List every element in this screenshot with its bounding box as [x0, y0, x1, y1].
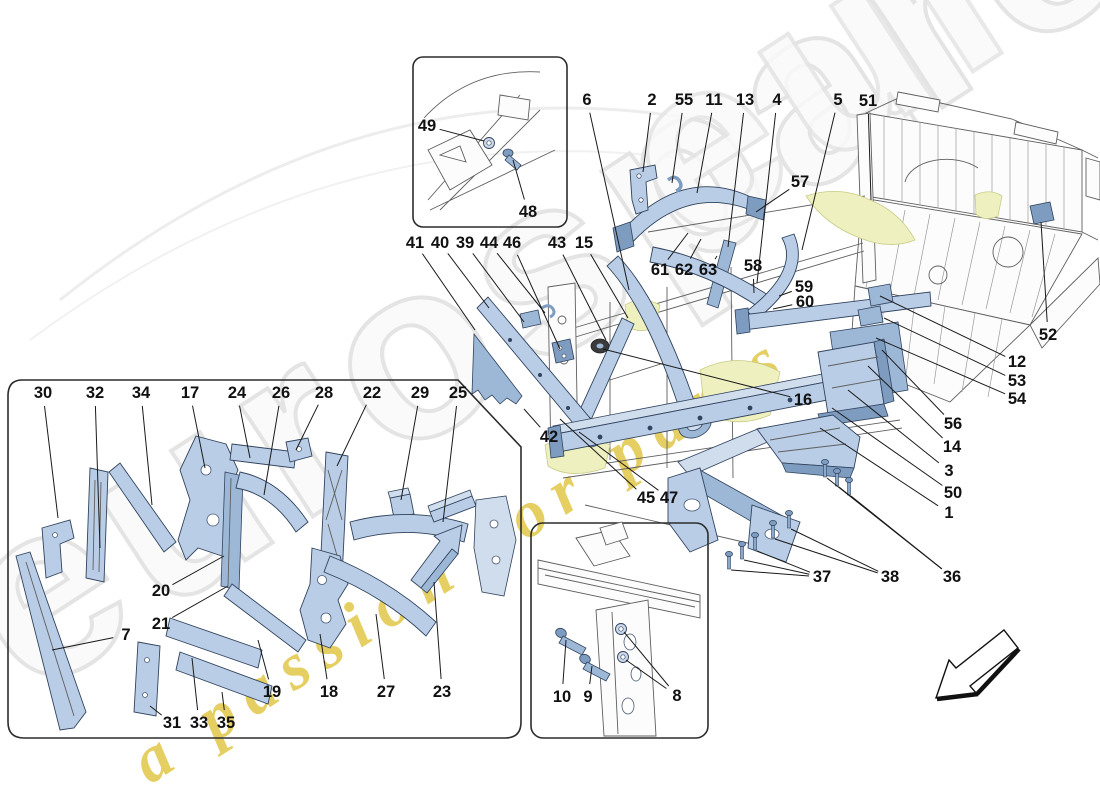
callout-49[interactable]: 49 — [418, 117, 436, 135]
callout-4[interactable]: 4 — [772, 91, 782, 109]
callout-50[interactable]: 50 — [944, 484, 962, 502]
callout-19[interactable]: 19 — [263, 683, 281, 701]
mount-box — [818, 342, 884, 414]
callout-38[interactable]: 38 — [881, 568, 899, 586]
callout-55[interactable]: 55 — [675, 91, 693, 109]
channel-20 — [221, 472, 243, 590]
callout-58[interactable]: 58 — [744, 257, 762, 275]
callout-23[interactable]: 23 — [433, 683, 451, 701]
orientation-arrow — [936, 630, 1019, 699]
callout-32[interactable]: 32 — [86, 384, 104, 402]
callout-43[interactable]: 43 — [548, 234, 566, 252]
callout-7[interactable]: 7 — [121, 626, 130, 644]
callout-24[interactable]: 24 — [228, 384, 247, 402]
callout-39[interactable]: 39 — [456, 234, 474, 252]
callout-2[interactable]: 2 — [647, 91, 656, 109]
callout-9[interactable]: 9 — [583, 688, 592, 706]
callout-47[interactable]: 47 — [660, 489, 678, 507]
leader-line-37 — [731, 570, 809, 576]
callout-56[interactable]: 56 — [944, 415, 962, 433]
callout-8[interactable]: 8 — [672, 687, 681, 705]
callout-48[interactable]: 48 — [519, 203, 537, 221]
callout-42[interactable]: 42 — [540, 428, 558, 446]
callout-34[interactable]: 34 — [132, 384, 151, 402]
bracket-part-52 — [1030, 202, 1054, 224]
callout-21[interactable]: 21 — [152, 615, 170, 633]
callout-30[interactable]: 30 — [34, 384, 52, 402]
leader-line-36 — [851, 496, 942, 569]
callout-22[interactable]: 22 — [363, 384, 381, 402]
callout-63[interactable]: 63 — [699, 261, 717, 279]
pillar-32 — [86, 468, 108, 582]
callout-26[interactable]: 26 — [272, 384, 290, 402]
callout-31[interactable]: 31 — [163, 714, 181, 732]
callout-28[interactable]: 28 — [315, 384, 333, 402]
callout-54[interactable]: 54 — [1008, 390, 1027, 408]
callout-15[interactable]: 15 — [575, 234, 593, 252]
callout-10[interactable]: 10 — [553, 688, 571, 706]
callout-53[interactable]: 53 — [1008, 372, 1026, 390]
callout-3[interactable]: 3 — [944, 462, 953, 480]
callout-61[interactable]: 61 — [651, 261, 669, 279]
callout-62[interactable]: 62 — [675, 261, 693, 279]
callout-5[interactable]: 5 — [833, 91, 842, 109]
callout-44[interactable]: 44 — [480, 234, 499, 252]
callout-27[interactable]: 27 — [377, 683, 395, 701]
tall-node — [474, 496, 516, 596]
pillar-31 — [134, 642, 160, 716]
callout-18[interactable]: 18 — [320, 683, 338, 701]
callout-40[interactable]: 40 — [431, 234, 449, 252]
callout-45[interactable]: 45 — [637, 489, 655, 507]
callout-25[interactable]: 25 — [449, 384, 467, 402]
highlight-part — [975, 192, 1002, 219]
leader-line-58 — [754, 279, 755, 293]
callout-20[interactable]: 20 — [152, 582, 170, 600]
callout-29[interactable]: 29 — [411, 384, 429, 402]
callout-17[interactable]: 17 — [181, 384, 199, 402]
leader-line-60 — [773, 305, 792, 309]
callout-6[interactable]: 6 — [582, 91, 591, 109]
callout-41[interactable]: 41 — [406, 234, 424, 252]
leader-line-10 — [563, 640, 566, 684]
callout-37[interactable]: 37 — [813, 568, 831, 586]
callout-51[interactable]: 51 — [859, 92, 877, 110]
callout-57[interactable]: 57 — [791, 173, 809, 191]
callout-16[interactable]: 16 — [794, 391, 812, 409]
leader-line-38 — [791, 529, 878, 571]
callout-36[interactable]: 36 — [943, 568, 961, 586]
callout-12[interactable]: 12 — [1008, 353, 1026, 371]
callout-33[interactable]: 33 — [190, 714, 208, 732]
callout-52[interactable]: 52 — [1039, 326, 1057, 344]
callout-11[interactable]: 11 — [705, 91, 722, 109]
callout-14[interactable]: 14 — [943, 438, 962, 456]
callout-13[interactable]: 13 — [736, 91, 754, 109]
parts-diagram-page: eurospares eurospares a passion for part… — [0, 0, 1100, 800]
diagram-canvas: eurospares eurospares a passion for part… — [0, 0, 1100, 800]
callout-35[interactable]: 35 — [217, 714, 235, 732]
callout-60[interactable]: 60 — [796, 293, 814, 311]
callout-1[interactable]: 1 — [944, 504, 953, 522]
callout-46[interactable]: 46 — [503, 234, 521, 252]
